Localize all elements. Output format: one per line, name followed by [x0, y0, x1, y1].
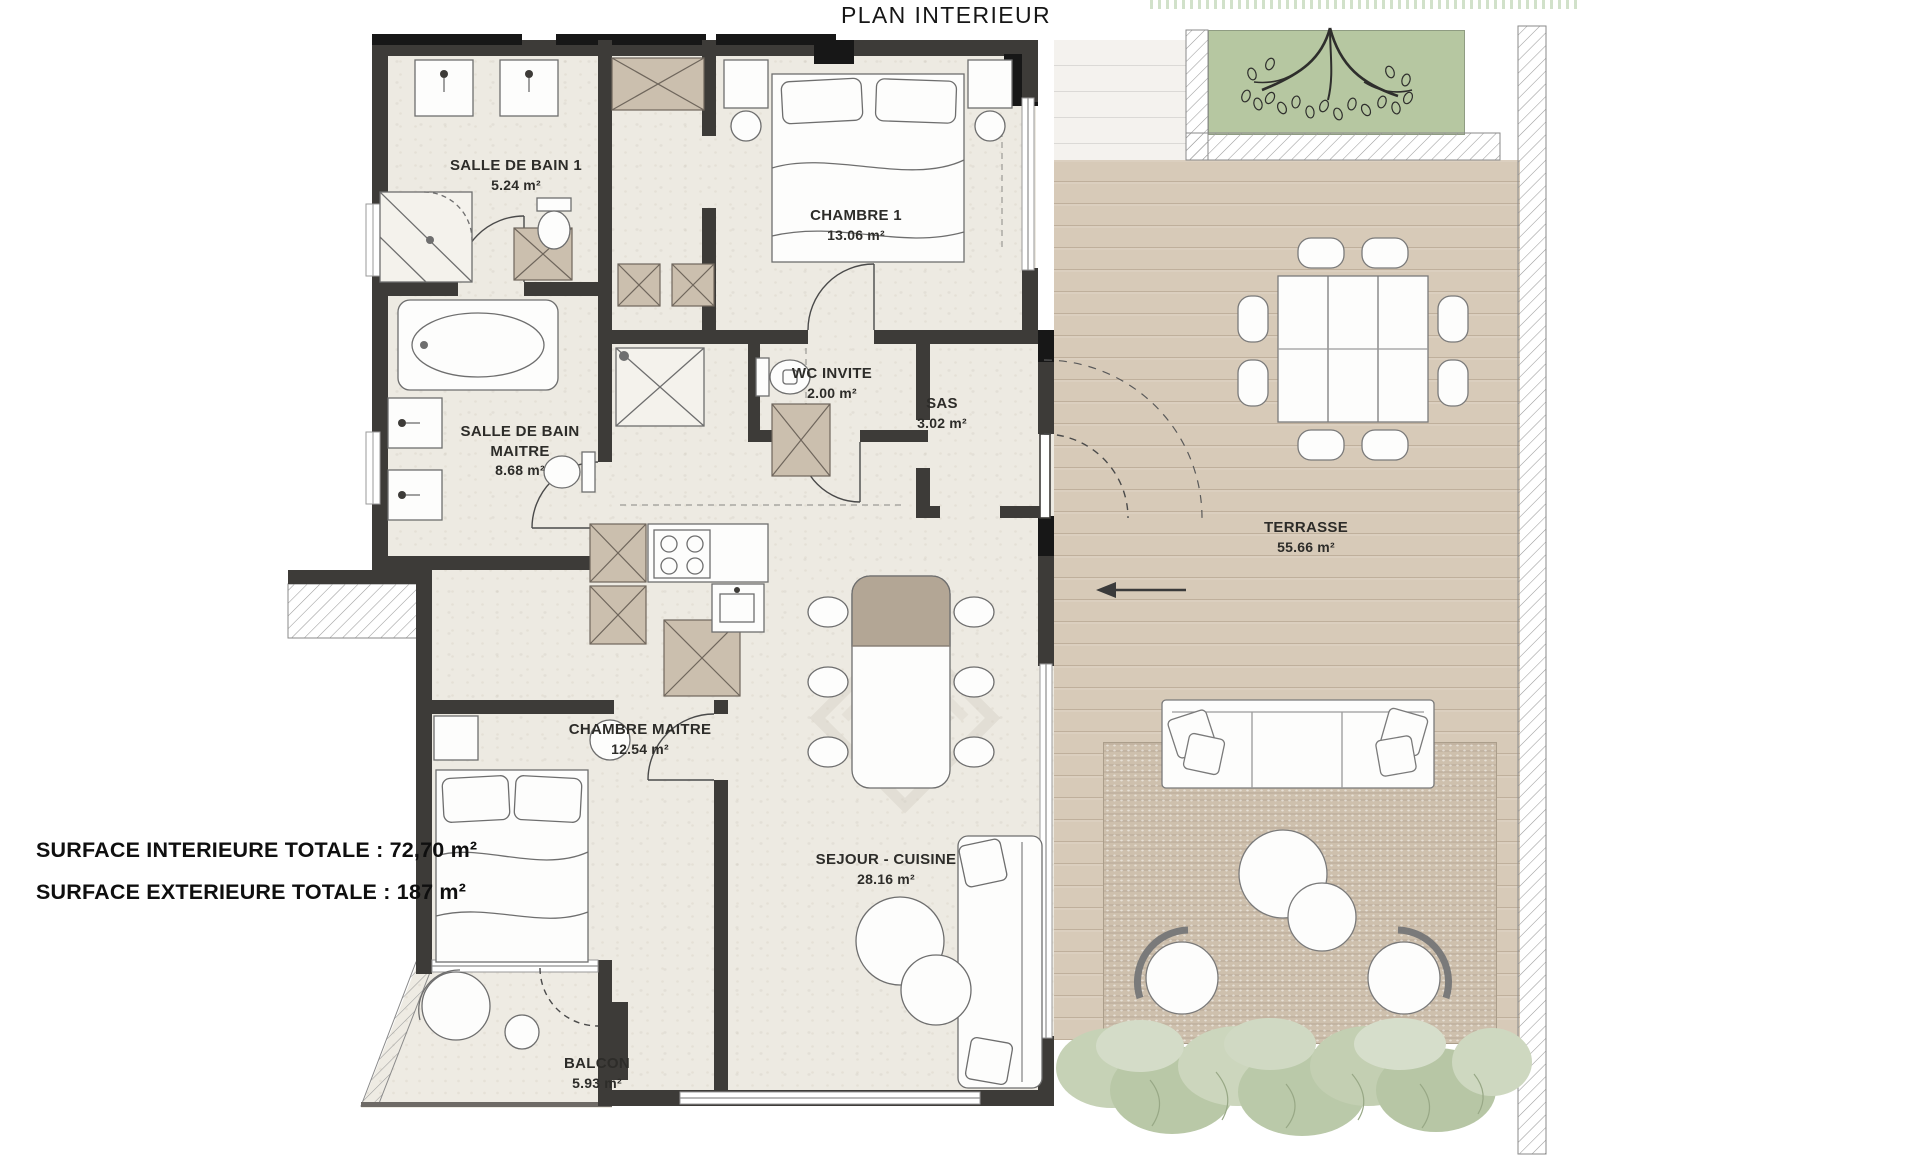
- chair: [808, 597, 848, 627]
- side-table: [505, 1015, 539, 1049]
- coffee-table: [1288, 883, 1356, 951]
- lounge-chair: [422, 972, 490, 1040]
- room-area: 55.66 m²: [1264, 538, 1348, 556]
- room-name: BALCON: [564, 1055, 630, 1072]
- sink: [388, 470, 442, 520]
- sink: [415, 60, 473, 116]
- chair: [1238, 360, 1268, 406]
- sink: [388, 398, 442, 448]
- nightstand: [968, 60, 1012, 108]
- coffee-table: [901, 955, 971, 1025]
- floor-plan-canvas: PLAN INTERIEUR SALLE DE BAIN 1 5.24 m² C…: [0, 0, 1920, 1170]
- surface-interior-total: SURFACE INTERIEURE TOTALE : 72,70 m²: [36, 838, 477, 863]
- room-name: CHAMBRE 1: [810, 207, 902, 224]
- chair: [808, 667, 848, 697]
- entrance-door-arc: [1040, 360, 1202, 518]
- page-title: PLAN INTERIEUR: [841, 2, 1051, 29]
- wardrobe: [618, 264, 660, 306]
- kitchen: [648, 524, 768, 632]
- room-label-salle-de-bain-1: SALLE DE BAIN 1 5.24 m²: [450, 136, 582, 214]
- nightstand: [724, 60, 768, 108]
- kitchen-tall-unit: [590, 586, 646, 644]
- plan-linework: [0, 0, 1920, 1170]
- room-label-chambre-1: CHAMBRE 1 13.06 m²: [810, 186, 902, 264]
- chair: [954, 667, 994, 697]
- wardrobe: [612, 58, 704, 110]
- room-area: 2.00 m²: [792, 384, 872, 402]
- room-area: 28.16 m²: [816, 870, 957, 888]
- room-name: CHAMBRE MAITRE: [569, 721, 712, 738]
- room-label-wc-invite: WC INVITE 2.00 m²: [792, 344, 872, 422]
- room-area: 3.02 m²: [917, 414, 967, 432]
- chair: [1238, 296, 1268, 342]
- chair: [1438, 296, 1468, 342]
- room-label-sas: SAS 3.02 m²: [917, 374, 967, 452]
- room-area: 12.54 m²: [569, 740, 712, 758]
- room-label-terrasse: TERRASSE 55.66 m²: [1264, 498, 1348, 576]
- chair: [1438, 360, 1468, 406]
- room-label-salle-de-bain-maitre: SALLE DE BAIN MAITRE 8.68 m²: [445, 402, 595, 500]
- chair: [954, 737, 994, 767]
- room-name: SALLE DE BAIN 1: [450, 157, 582, 174]
- lounge-chair: [1137, 930, 1218, 1014]
- kitchen-tall-unit: [590, 524, 646, 582]
- kitchen-sink: [712, 584, 764, 632]
- room-name: WC INVITE: [792, 365, 872, 382]
- chair: [1298, 430, 1344, 460]
- dining-table: [852, 576, 950, 788]
- room-name: SAS: [926, 395, 958, 412]
- bedside-lamp: [731, 111, 761, 141]
- nightstand: [434, 716, 478, 760]
- surface-totals: SURFACE INTERIEURE TOTALE : 72,70 m² SUR…: [36, 838, 477, 905]
- surface-exterior-total: SURFACE EXTERIEURE TOTALE : 187 m²: [36, 880, 477, 905]
- tree-illustration: [1240, 28, 1414, 121]
- entrance-arrow-icon: [1096, 582, 1186, 598]
- sofa: [958, 836, 1042, 1088]
- wardrobe: [672, 264, 714, 306]
- outdoor-lounge: [1137, 700, 1448, 1014]
- balcony-furniture: [419, 970, 539, 1049]
- room-name: TERRASSE: [1264, 519, 1348, 536]
- chair: [1362, 238, 1408, 268]
- lounge-chair: [1368, 930, 1449, 1014]
- room-label-chambre-maitre: CHAMBRE MAITRE 12.54 m²: [569, 700, 712, 778]
- bathtub: [398, 300, 558, 390]
- room-name: SALLE DE BAIN MAITRE: [461, 423, 580, 460]
- chair: [954, 597, 994, 627]
- outdoor-sofa: [1162, 700, 1434, 788]
- room-area: 5.24 m²: [450, 176, 582, 194]
- chair: [1298, 238, 1344, 268]
- chair: [808, 737, 848, 767]
- shower: [616, 348, 704, 426]
- bedside-lamp: [975, 111, 1005, 141]
- room-area: 8.68 m²: [445, 461, 595, 479]
- sink: [500, 60, 558, 116]
- room-name: SEJOUR - CUISINE: [816, 851, 957, 868]
- room-label-balcon: BALCON 5.93 m²: [564, 1034, 630, 1112]
- room-area: 5.93 m²: [564, 1074, 630, 1092]
- room-area: 13.06 m²: [810, 226, 902, 244]
- outdoor-dining-set: [1238, 238, 1468, 460]
- plants-illustration: [1056, 1018, 1532, 1136]
- chair: [1362, 430, 1408, 460]
- room-label-sejour-cuisine: SEJOUR - CUISINE 28.16 m²: [816, 830, 957, 908]
